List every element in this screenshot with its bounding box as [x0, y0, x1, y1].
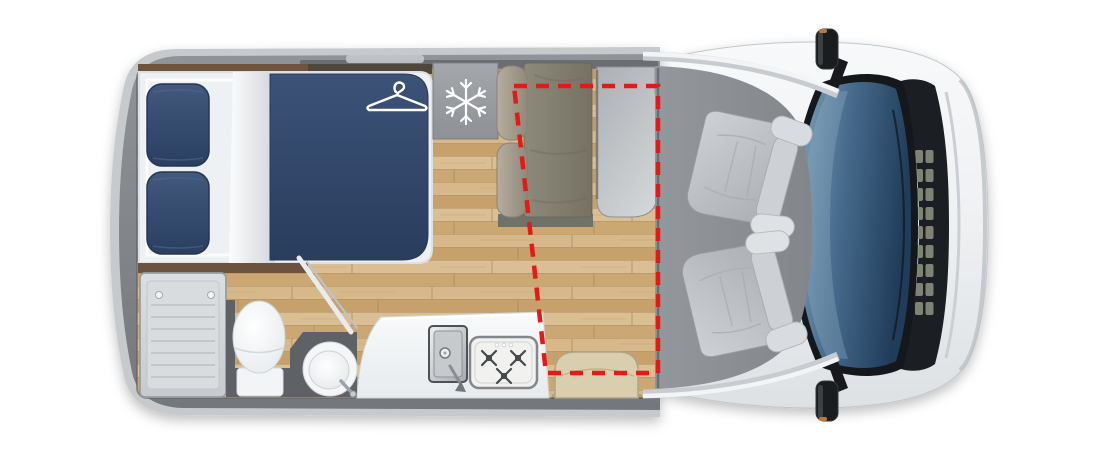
floorplan-canvas [0, 0, 1101, 450]
bedroom [139, 72, 432, 263]
shower-tray [140, 273, 226, 397]
washbasin [303, 342, 357, 397]
toilet [233, 301, 285, 396]
bench-backrest-cushion [497, 66, 527, 140]
kitchen [357, 312, 549, 398]
pillow [147, 84, 209, 166]
basin-faucet-head [350, 391, 356, 397]
top-window [346, 55, 424, 63]
sheet-fold [229, 72, 275, 263]
hob-three-burner [470, 337, 537, 388]
hob-knob [502, 343, 506, 347]
bed-base-strip [138, 263, 308, 273]
stool-seat [552, 352, 642, 399]
hob-knob [495, 343, 499, 347]
shower-drain [208, 292, 215, 299]
shower-drain [156, 292, 163, 299]
duvet [270, 74, 428, 260]
motorhome-floorplan [0, 0, 1101, 450]
kitchen-sink [429, 326, 467, 392]
fridge-cabinet [433, 63, 498, 139]
pillow [147, 172, 209, 254]
hob-knob [509, 343, 513, 347]
